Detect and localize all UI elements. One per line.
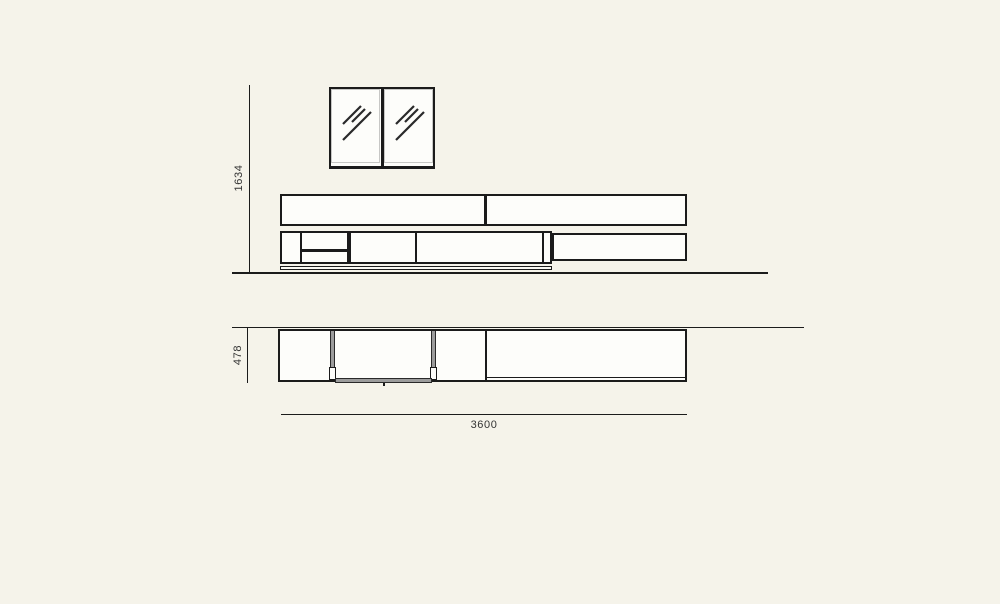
lower-cabinet-right <box>552 233 687 262</box>
cabinet-door-right <box>384 89 433 163</box>
lower-left-divider-1 <box>300 233 302 263</box>
plinth-strip <box>280 266 552 271</box>
lower-cabinet-left <box>280 231 552 265</box>
shelf-line <box>300 249 351 252</box>
front-elevation-view: 1634 <box>0 0 1000 300</box>
side-panel-right <box>431 331 436 367</box>
width-dimension-line <box>281 414 687 415</box>
technical-drawing-page: { "colors": { "background": "#f5f3ea", "… <box>0 0 1000 604</box>
height-dimension-label: 1634 <box>232 148 246 208</box>
side-panel-left <box>330 331 335 367</box>
plan-view: 478 3600 <box>0 300 1000 450</box>
upper-row-divider <box>484 196 487 224</box>
height-dimension-line <box>249 85 250 272</box>
upper-shelf-row <box>280 194 687 226</box>
depth-dimension-label: 478 <box>231 325 245 385</box>
glass-hatch-icon <box>384 89 433 163</box>
door-handle-tick <box>383 383 385 387</box>
lower-left-divider-3 <box>542 233 544 263</box>
plan-divider <box>485 331 487 381</box>
wall-cabinet <box>329 87 435 169</box>
plan-right-front-line <box>487 377 685 378</box>
plan-carcass-box <box>278 329 687 383</box>
glass-hatch-icon <box>331 89 380 163</box>
depth-dimension-line <box>247 327 248 383</box>
floor-line <box>232 272 768 274</box>
lower-left-divider-thick <box>347 233 351 263</box>
lower-left-divider-2 <box>415 233 417 263</box>
width-dimension-label: 3600 <box>281 418 687 432</box>
cabinet-door-left <box>331 89 380 163</box>
